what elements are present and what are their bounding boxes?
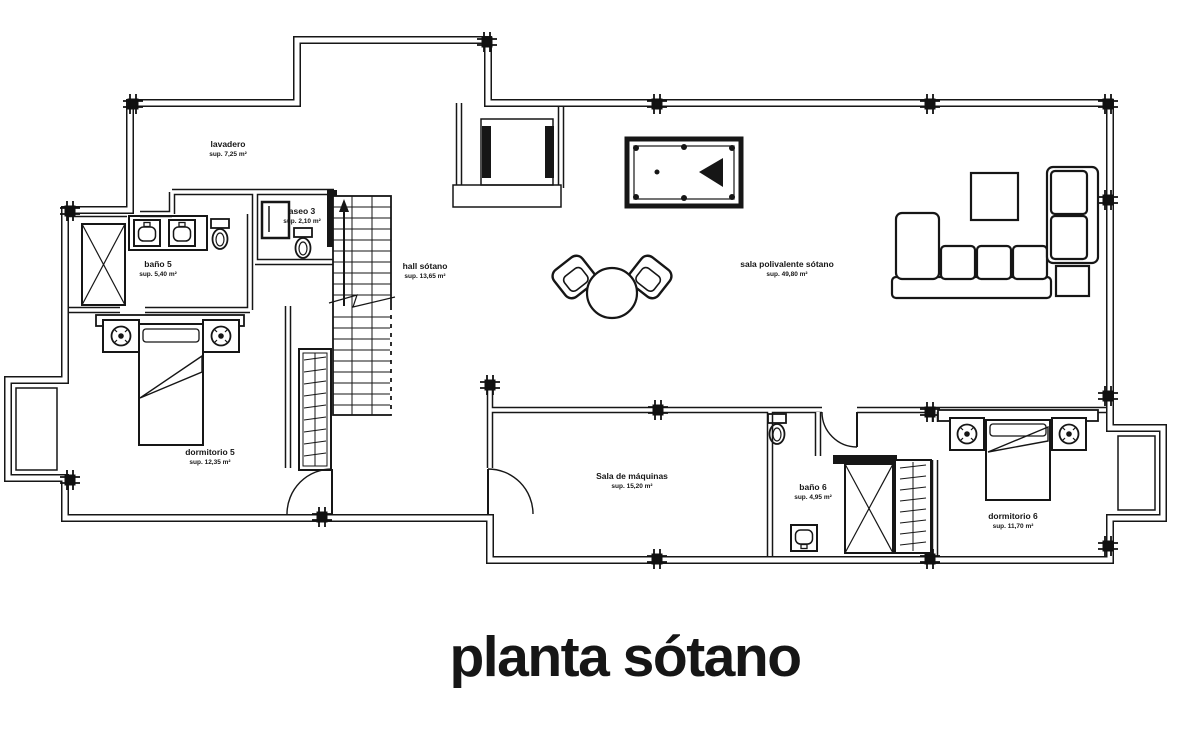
room-label-hall-sotano: hall sótano (403, 261, 448, 271)
sofa-cushion (1051, 216, 1087, 259)
bay-window-left (16, 388, 57, 470)
room-area: sup. 49,80 m² (766, 271, 808, 278)
coffee-table (971, 173, 1018, 220)
page-title: planta sótano (449, 625, 800, 689)
sofa-cushion (941, 246, 975, 279)
washbasin-icon (791, 525, 817, 551)
floorplan-drawing: lavadero sup. 7,25 m² baño 5 sup. 5,40 m… (0, 0, 1200, 743)
elevator-shaft (453, 119, 561, 207)
round-table-set (549, 253, 674, 318)
room-label-dormitorio6: dormitorio 6 (988, 511, 1038, 521)
room-label-lavadero: lavadero (211, 139, 246, 149)
toilet-icon (294, 228, 312, 258)
bed-dormitorio5 (96, 315, 244, 445)
bay-window-right (1118, 436, 1155, 510)
door-sala-maquinas (488, 469, 533, 514)
room-area: sup. 13,65 m² (404, 273, 446, 280)
room-area: sup. 11,70 m² (993, 523, 1035, 530)
elevator-door-track (482, 126, 491, 178)
room-label-bano6: baño 6 (799, 482, 827, 492)
room-label-sala-maquinas: Sala de máquinas (596, 471, 668, 481)
room-area: sup. 5,40 m² (139, 271, 177, 278)
ottoman (1056, 266, 1089, 296)
pillow (143, 329, 199, 342)
bed-dormitorio6 (938, 410, 1098, 500)
shower-bano5 (82, 224, 125, 305)
room-label-bano5: baño 5 (144, 259, 172, 269)
staircase (329, 196, 395, 415)
toilet-icon (211, 219, 229, 249)
elevator-door-track (545, 126, 554, 178)
chaise (896, 213, 939, 279)
room-area: sup. 12,35 m² (189, 459, 231, 466)
billiard-table (627, 139, 741, 206)
shower-bano6 (845, 464, 893, 553)
room-area: sup. 7,25 m² (209, 151, 247, 158)
wall-solid-segment (833, 455, 897, 464)
sofa-cushion (1051, 171, 1087, 214)
cue-ball (655, 170, 660, 175)
room-label-sala-polivalente: sala polivalente sótano (740, 259, 834, 269)
wardrobe-hall (299, 349, 331, 470)
round-table (587, 268, 637, 318)
wardrobe-dormitorio6 (895, 460, 931, 553)
vanity-counter (129, 216, 207, 250)
washbasin-icon (134, 220, 160, 246)
sofa-base (892, 277, 1051, 298)
room-area: sup. 2,10 m² (283, 218, 321, 225)
sofa-cushion (1013, 246, 1047, 279)
room-area: sup. 15,20 m² (611, 483, 653, 490)
washbasin-icon (169, 220, 195, 246)
room-label-aseo3: aseo 3 (289, 206, 316, 216)
pillow (990, 424, 1046, 436)
sofa-cushion (977, 246, 1011, 279)
room-area: sup. 4,95 m² (794, 494, 832, 501)
room-label-dormitorio5: dormitorio 5 (185, 447, 235, 457)
sofa-sectional (892, 167, 1098, 298)
floorplan-page: lavadero sup. 7,25 m² baño 5 sup. 5,40 m… (0, 0, 1200, 743)
door-bano6 (822, 412, 857, 447)
